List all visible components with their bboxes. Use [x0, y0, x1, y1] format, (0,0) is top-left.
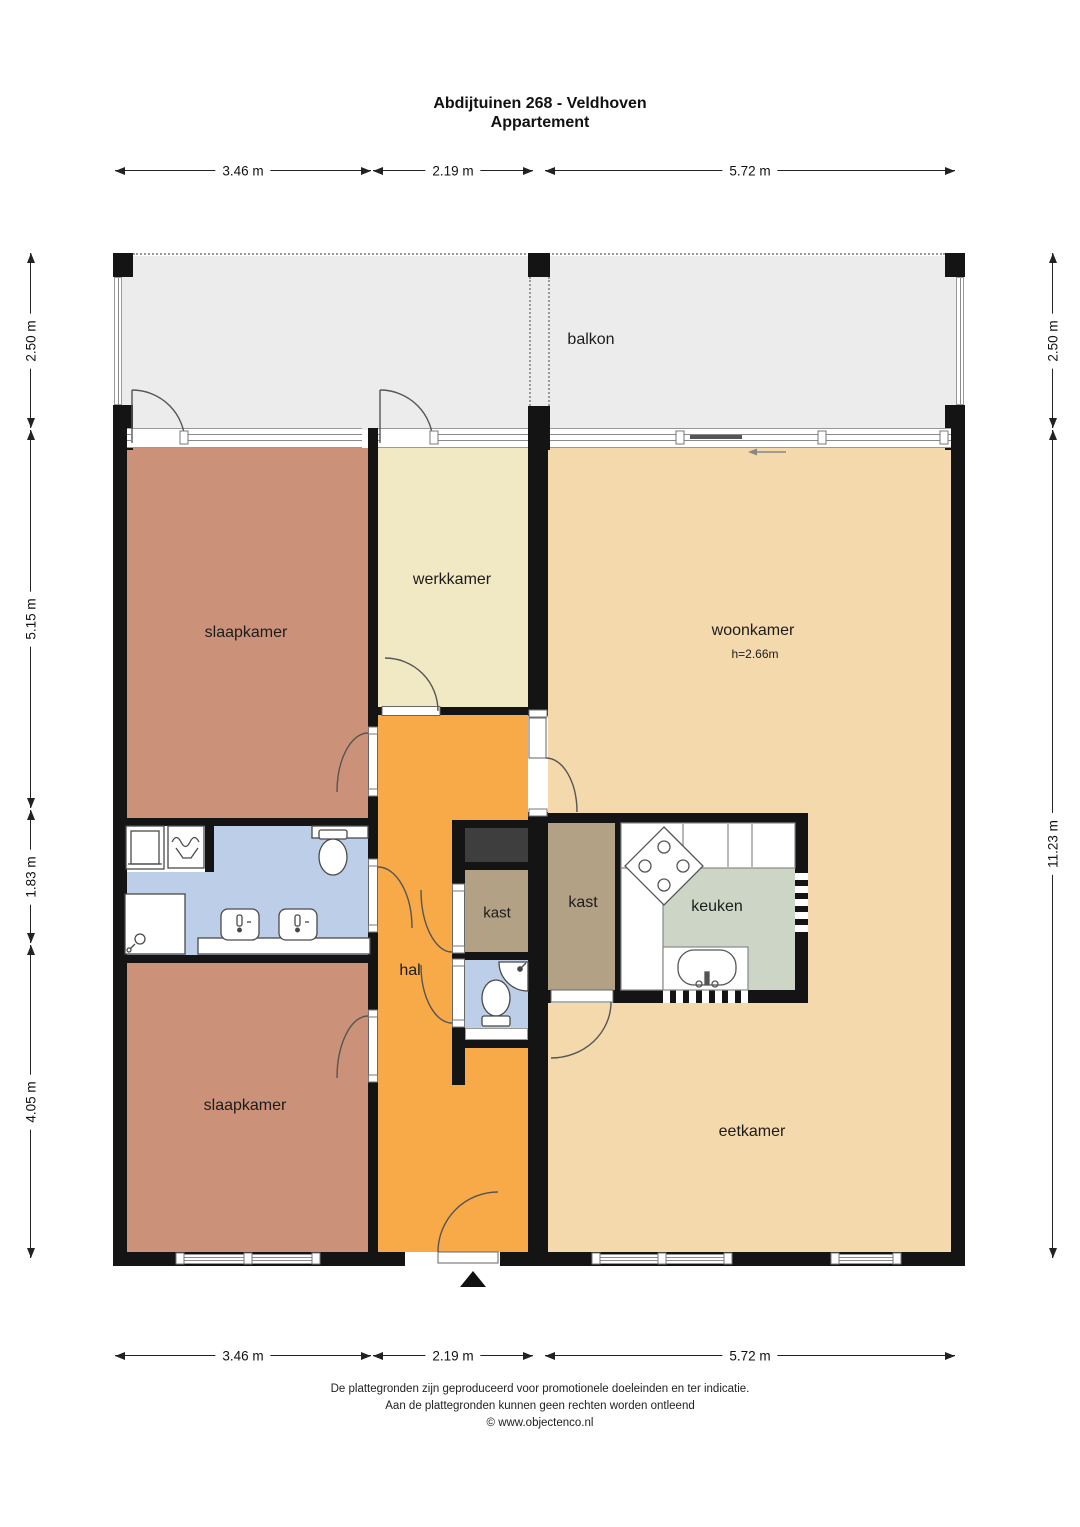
window-band-woonkamer — [550, 428, 951, 448]
wall-hal-woonkamer — [528, 448, 548, 1252]
room-label-hal: hal — [399, 962, 420, 980]
room-label-kast-2: kast — [568, 894, 597, 912]
wall-column-stub — [452, 1048, 465, 1085]
dim-left-1-label: 2.50 m — [24, 313, 39, 368]
keuken-opening-right — [795, 873, 808, 932]
exterior-wall-left — [113, 405, 127, 1266]
werkkamer-door-gap — [382, 707, 440, 715]
footer-disclaimer-2: Aan de plattegronden kunnen geen rechten… — [0, 1400, 1080, 1412]
dim-top-3: 5.72 m — [545, 170, 955, 171]
wall-under-shaft — [465, 862, 528, 870]
room-label-woonkamer-height: h=2.66m — [731, 647, 778, 661]
dim-right-2-label: 11.23 m — [1046, 813, 1061, 875]
balkon-door2-gap — [380, 429, 436, 447]
entrance-marker — [460, 1271, 486, 1287]
page-title: Abdijtuinen 268 - Veldhoven — [0, 95, 1080, 113]
room-label-werkkamer: werkkamer — [413, 571, 491, 589]
room-label-keuken: keuken — [691, 898, 743, 916]
dim-left-4-label: 4.05 m — [24, 1074, 39, 1129]
dim-bottom-2: 2.19 m — [373, 1355, 533, 1356]
wall-central-vertical — [368, 428, 378, 1252]
wall-laundry-stub — [205, 820, 214, 872]
balkon-post-middle — [528, 253, 550, 277]
dim-bottom-2-label: 2.19 m — [425, 1349, 480, 1364]
page-subtitle: Appartement — [0, 114, 1080, 132]
dim-bottom-3-label: 5.72 m — [722, 1349, 777, 1364]
balkon-post-left — [113, 253, 133, 277]
room-label-slaapkamer-2: slaapkamer — [204, 1097, 287, 1115]
slaapkamer1-door-gap — [368, 733, 378, 792]
kast1-door-gap — [452, 890, 465, 952]
badkamer-laundry-nook — [127, 826, 205, 872]
floorplan-page: Abdijtuinen 268 - Veldhoven Appartement … — [0, 0, 1080, 1527]
dim-top-2: 2.19 m — [373, 170, 533, 171]
front-door-gap — [405, 1252, 500, 1266]
facade-post-middle — [528, 406, 550, 450]
dim-left-1: 2.50 m — [30, 253, 31, 428]
wall-badkamer-top — [113, 818, 378, 826]
balkon-window-left — [114, 277, 122, 405]
footer-disclaimer-1: De plattegronden zijn geproduceerd voor … — [0, 1383, 1080, 1395]
wc-door-gap — [452, 965, 465, 1023]
exterior-wall-right — [951, 405, 965, 1266]
balkon-post-right — [945, 253, 965, 277]
dim-top-2-label: 2.19 m — [425, 164, 480, 179]
room-label-eetkamer: eetkamer — [719, 1123, 786, 1141]
badkamer-door-gap — [368, 865, 378, 928]
footer-copyright: © www.objectenco.nl — [0, 1417, 1080, 1429]
slaapkamer2-door-gap — [368, 1016, 378, 1078]
shaft-floor — [465, 828, 528, 862]
dim-top-1-label: 3.46 m — [215, 164, 270, 179]
wc-floor — [465, 960, 528, 1028]
wc-ledge — [465, 1028, 528, 1040]
balkon-door1-gap — [131, 429, 185, 447]
room-label-balkon: balkon — [567, 331, 614, 349]
dim-bottom-3: 5.72 m — [545, 1355, 955, 1356]
dim-bottom-1: 3.46 m — [115, 1355, 371, 1356]
room-label-kast-1: kast — [483, 905, 511, 922]
dim-right-1-label: 2.50 m — [1046, 313, 1061, 368]
keuken-opening-bottom — [663, 990, 748, 1003]
wall-column-left-a — [452, 820, 465, 890]
window-eetkamer-left — [598, 1254, 730, 1264]
window-slaapkamer2 — [182, 1254, 318, 1264]
wall-kast1-wc — [452, 952, 530, 960]
balkon-dotted-column — [529, 277, 550, 406]
dim-left-3: 1.83 m — [30, 810, 31, 943]
dim-left-3-label: 1.83 m — [24, 849, 39, 904]
wall-keukenblok-top — [548, 813, 808, 823]
dim-top-3-label: 5.72 m — [722, 164, 777, 179]
window-eetkamer-right — [837, 1254, 897, 1264]
dim-bottom-1-label: 3.46 m — [215, 1349, 270, 1364]
dim-left-4: 4.05 m — [30, 945, 31, 1258]
dim-right-1: 2.50 m — [1052, 253, 1053, 428]
kast2-door-gap — [551, 990, 613, 1003]
room-label-slaapkamer-1: slaapkamer — [205, 624, 288, 642]
wall-kast2-keuken — [615, 823, 621, 990]
dim-top-1: 3.46 m — [115, 170, 371, 171]
wall-badkamer-bottom — [113, 955, 378, 963]
dim-right-2: 11.23 m — [1052, 430, 1053, 1258]
dim-left-2: 5.15 m — [30, 430, 31, 808]
wall-column-bottom — [452, 1040, 530, 1048]
dim-left-2-label: 5.15 m — [24, 591, 39, 646]
keuken-floor-b — [748, 947, 795, 990]
woonkamer-door-gap — [528, 716, 548, 812]
room-label-woonkamer: woonkamer — [712, 622, 795, 640]
balkon-window-right — [956, 277, 964, 405]
